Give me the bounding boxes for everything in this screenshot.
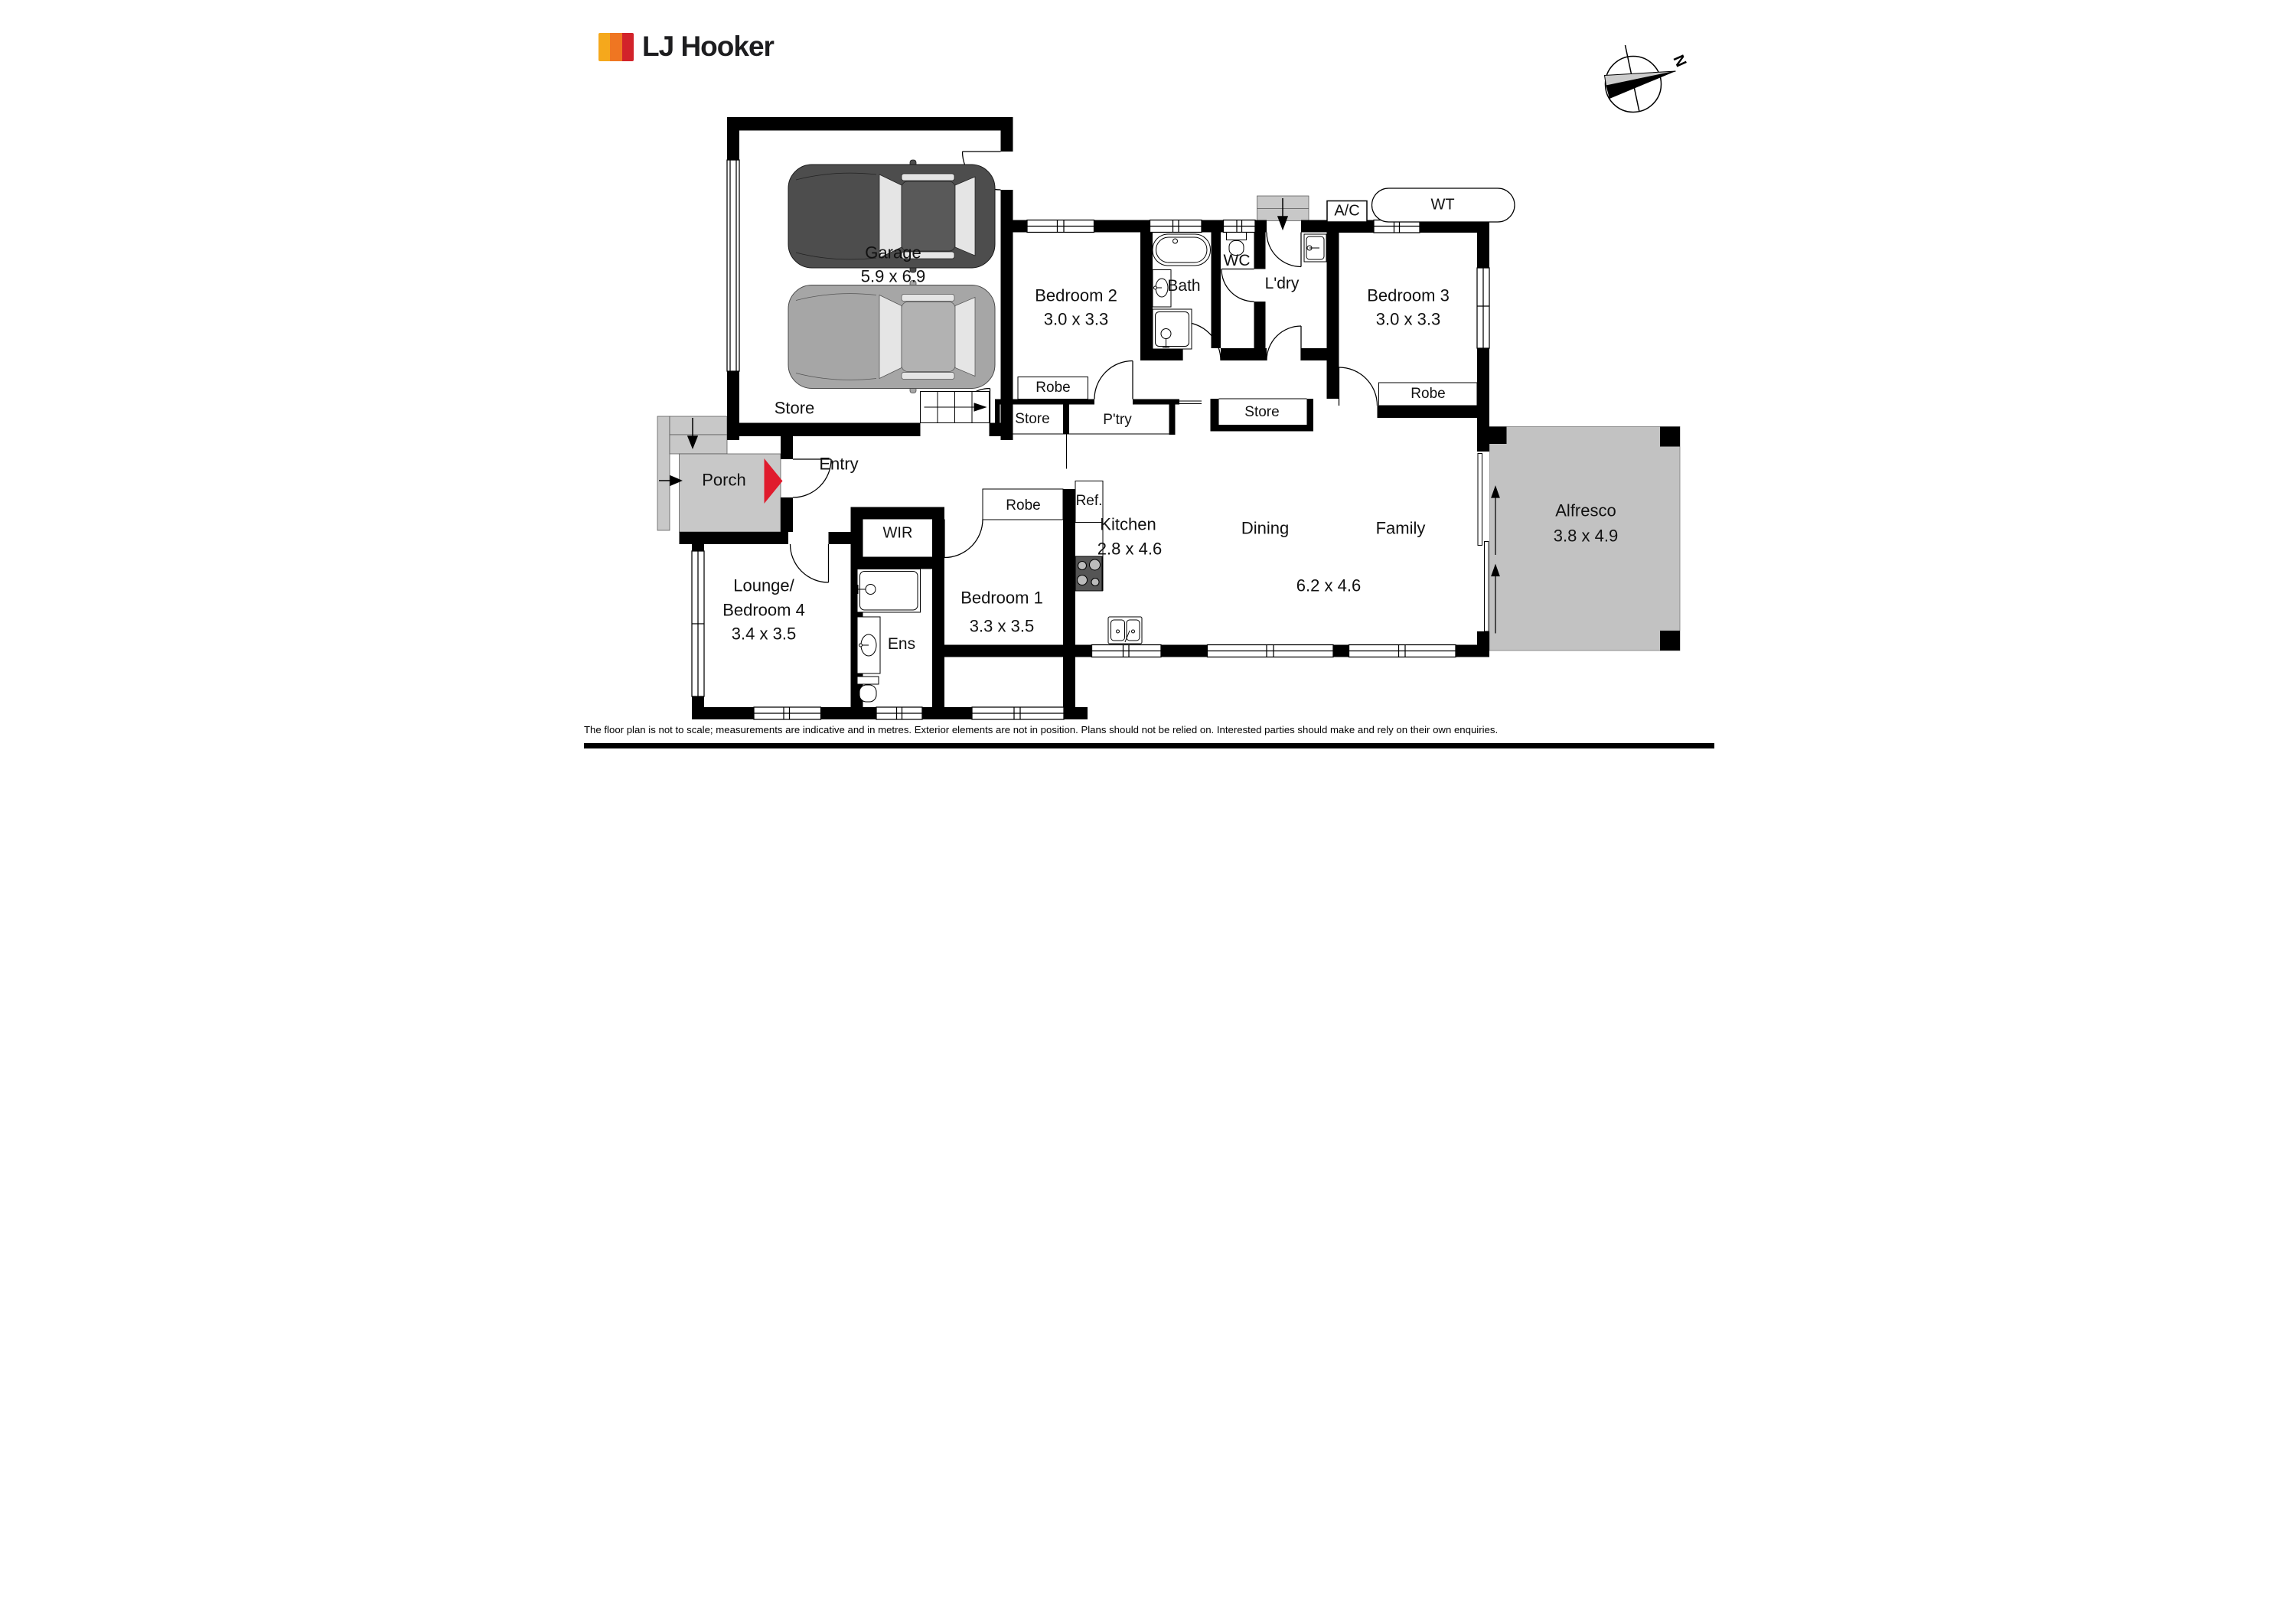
alfresco-dims: 3.8 x 4.9 [1554,527,1618,544]
window [1208,645,1334,657]
ens-shower-icon [857,569,921,613]
garage-label: Garage [865,243,921,261]
bathtub-icon [1153,234,1211,266]
door-swing-icon [1267,233,1301,267]
bedroom1-robe-label: Robe [1006,498,1040,514]
window [1027,220,1094,233]
bedroom3-dims: 3.0 x 3.3 [1376,310,1440,328]
floorplan-page: LJ Hooker N Garage 5.9 x 6.9 Store Bedro… [574,0,1722,812]
ens-toilet-icon [857,677,879,702]
shower-icon [1153,309,1192,349]
laundry-sink-icon [1304,234,1326,262]
footer-divider [584,743,1714,748]
window [1150,220,1202,233]
ens-vanity-sink-icon [857,617,880,673]
fridge-label: Ref. [1076,494,1103,509]
window [1477,268,1489,348]
window [1092,645,1162,657]
bedroom2-robe-label: Robe [1035,380,1070,396]
window [754,707,821,719]
entry-label: Entry [819,455,858,472]
brand-name: LJ Hooker [642,31,774,63]
wir-label: WIR [883,526,913,542]
disclaimer-text: The floor plan is not to scale; measurem… [584,724,1498,735]
door-swing-icon [791,544,829,582]
hall-store-label: Store [1015,412,1049,427]
window [1224,220,1256,233]
window [876,707,922,719]
kitchen-label: Kitchen [1100,515,1156,533]
kitchen-dims: 2.8 x 4.6 [1097,540,1162,557]
window [972,707,1064,719]
cooktop-icon [1075,556,1102,591]
alfresco-label: Alfresco [1555,501,1616,519]
north-compass-icon [1605,45,1676,113]
lounge-dims: 3.4 x 3.5 [732,624,796,642]
garage-store-label: Store [775,399,815,416]
brand-logo: LJ Hooker [598,31,774,63]
window [1349,645,1456,657]
floorplan-drawing [574,0,1722,812]
pantry-label: P'try [1103,413,1131,428]
ac-label: A/C [1334,204,1359,220]
mid-store-label: Store [1244,405,1279,420]
bedroom1-dims: 3.3 x 3.5 [970,617,1034,634]
dining-label: Dining [1241,519,1289,536]
bath-label: Bath [1167,278,1200,295]
door-swing-icon [1339,367,1378,406]
garage-dims: 5.9 x 6.9 [861,267,925,285]
family-label: Family [1376,519,1426,536]
bedroom2-dims: 3.0 x 3.3 [1044,310,1108,328]
bedroom3-label: Bedroom 3 [1367,286,1450,304]
bedroom1-label: Bedroom 1 [960,589,1043,606]
garage-door [727,160,739,371]
laundry-label: L'dry [1265,276,1300,292]
lounge-label-line1: Lounge/ [733,576,794,594]
stairs-icon [921,392,990,423]
ens-label: Ens [888,636,915,653]
door-swing-icon [1094,361,1133,399]
wc-label: WC [1224,253,1251,269]
window [692,551,704,696]
porch-label: Porch [702,471,745,488]
bedroom3-robe-label: Robe [1411,386,1445,402]
kitchen-sink-icon [1108,617,1142,644]
brand-flag-icon [598,33,634,61]
wt-label: WT [1430,197,1454,214]
bedroom2-label: Bedroom 2 [1035,286,1117,304]
door-swing-icon [944,520,983,558]
door-swing-icon [1221,269,1254,302]
door-swing-icon [1267,326,1301,360]
lounge-label-line2: Bedroom 4 [722,601,805,618]
car-top-view-icon [788,281,995,393]
living-dims: 6.2 x 4.6 [1296,576,1361,594]
